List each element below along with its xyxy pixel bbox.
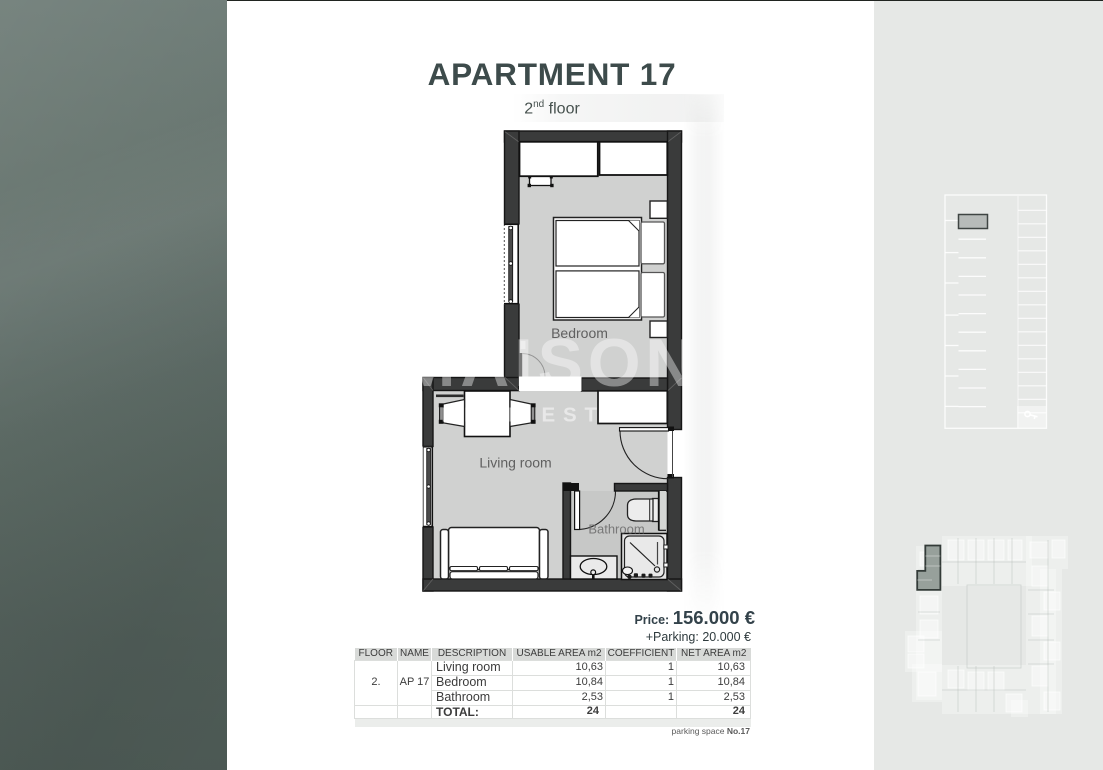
svg-text:REAL ESTATE: REAL ESTATE (441, 404, 666, 427)
svg-text:MAISON: MAISON (399, 325, 699, 401)
svg-text:Living room: Living room (479, 455, 551, 471)
svg-text:Bathroom: Bathroom (588, 522, 644, 537)
